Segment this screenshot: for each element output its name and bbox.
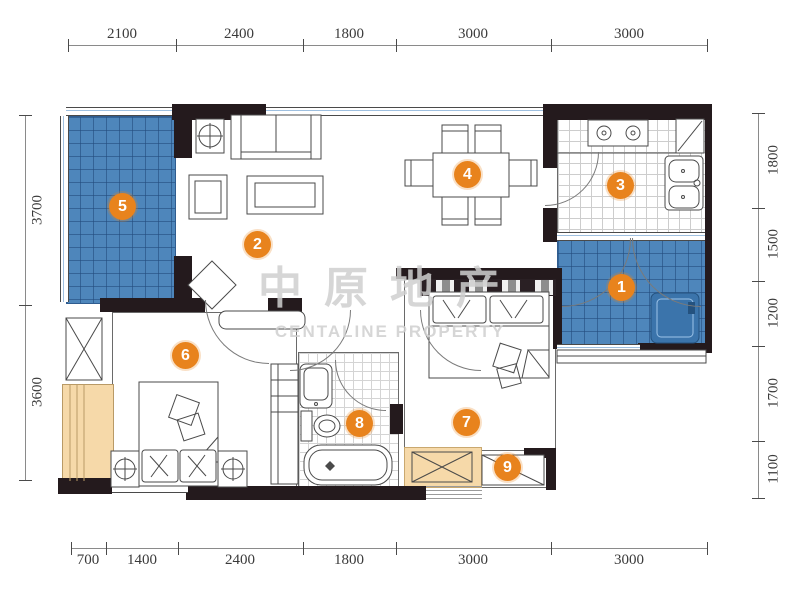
dim-tick	[303, 39, 304, 52]
dim-line	[25, 115, 26, 480]
dim-tick	[551, 39, 552, 52]
wall-segment	[524, 448, 548, 458]
sofa	[231, 115, 321, 159]
dim-tick	[396, 39, 397, 52]
dim-label: 1800	[766, 145, 783, 175]
dim-tick	[176, 39, 177, 52]
floor-plan: 2100 2400 1800 3000 3000 700 1400 2400 1…	[0, 0, 800, 590]
dim-label: 1500	[766, 229, 783, 259]
dim-tick	[752, 441, 765, 442]
dim-label: 1200	[766, 298, 783, 328]
room-marker-9: 9	[494, 454, 521, 481]
room-marker-4: 4	[454, 161, 481, 188]
dim-label: 3000	[614, 26, 644, 43]
dim-label: 3600	[30, 377, 47, 407]
dim-tick	[752, 113, 765, 114]
room-marker-5: 5	[109, 193, 136, 220]
entry-mat-area	[404, 447, 482, 488]
dim-label: 1700	[766, 378, 783, 408]
dim-label: 3000	[458, 552, 488, 569]
dim-label: 3000	[458, 26, 488, 43]
wall-segment	[390, 404, 403, 434]
dim-tick	[68, 39, 69, 52]
bay-window-area	[62, 384, 114, 484]
wall-segment	[186, 486, 426, 500]
entry-threshold	[426, 486, 482, 499]
dim-tick	[752, 208, 765, 209]
dim-label: 700	[77, 552, 100, 569]
dim-line	[68, 45, 707, 46]
armchair	[189, 175, 227, 219]
dim-line	[71, 548, 707, 549]
dim-tick	[551, 542, 552, 555]
window-band	[60, 116, 69, 302]
dim-label: 3000	[614, 552, 644, 569]
dim-label: 2100	[107, 26, 137, 43]
dim-label: 1800	[334, 552, 364, 569]
room-marker-3: 3	[607, 172, 634, 199]
ceiling-lamp-icon	[196, 119, 224, 153]
room-marker-1: 1	[608, 274, 635, 301]
wall-segment	[172, 104, 266, 120]
dim-label: 1400	[127, 552, 157, 569]
dim-tick	[106, 542, 107, 555]
wall-segment	[174, 256, 192, 304]
watermark-chinese: 中原地产	[258, 252, 522, 316]
dim-tick	[752, 346, 765, 347]
dim-tick	[19, 480, 32, 481]
dim-tick	[178, 542, 179, 555]
dim-label: 2400	[225, 552, 255, 569]
dim-label: 2400	[224, 26, 254, 43]
watermark: 中原地产 CENTALINE PROPERTY	[258, 252, 522, 342]
dim-tick	[707, 39, 708, 52]
coffee-table	[247, 176, 323, 214]
wall-segment	[543, 208, 557, 242]
room-marker-8: 8	[346, 410, 373, 437]
dim-tick	[19, 305, 32, 306]
dim-tick	[19, 115, 32, 116]
wall-segment	[638, 343, 712, 353]
dim-label: 1100	[766, 454, 783, 483]
dim-tick	[752, 281, 765, 282]
dim-label: 3700	[30, 195, 47, 225]
wall-segment	[100, 298, 205, 312]
dim-tick	[707, 542, 708, 555]
window-band	[557, 344, 640, 354]
wall-segment	[58, 478, 112, 494]
window-band	[112, 482, 188, 493]
room-marker-7: 7	[453, 409, 480, 436]
wall-segment	[174, 120, 192, 158]
window-band	[266, 107, 543, 116]
wall-segment	[546, 448, 556, 490]
window-band	[66, 107, 172, 116]
room-marker-6: 6	[172, 342, 199, 369]
dim-tick	[303, 542, 304, 555]
dim-tick	[396, 542, 397, 555]
dim-label: 1800	[334, 26, 364, 43]
dim-tick	[71, 542, 72, 555]
wall-segment	[543, 104, 712, 120]
wall-segment	[705, 120, 712, 352]
dim-tick	[752, 498, 765, 499]
watermark-english: CENTALINE PROPERTY	[258, 322, 522, 342]
